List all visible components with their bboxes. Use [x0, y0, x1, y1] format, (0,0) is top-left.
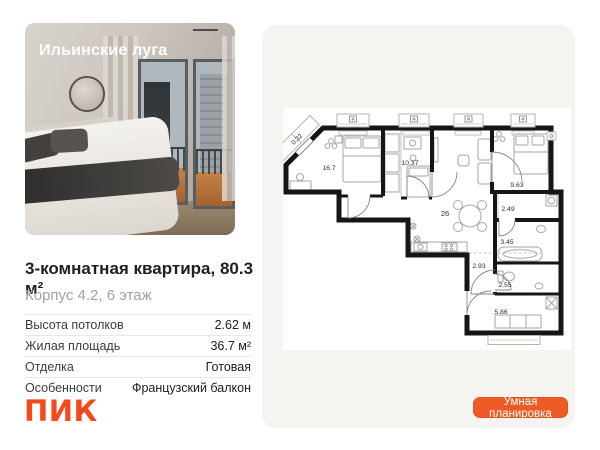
spec-row-ceiling: Высота потолков 2.62 м: [25, 314, 251, 335]
spec-value: 2.62 м: [215, 318, 251, 332]
spec-table: Высота потолков 2.62 м Жилая площадь 36.…: [25, 314, 251, 398]
room-area-label: 16.7: [322, 165, 335, 172]
spec-label: Жилая площадь: [25, 339, 120, 353]
room-area-label: 2.55: [498, 282, 511, 289]
room-area-label: 26: [441, 209, 449, 218]
pik-logo[interactable]: ПИК: [24, 394, 98, 428]
photo-curtain: [222, 36, 235, 201]
spec-row-living-area: Жилая площадь 36.7 м²: [25, 335, 251, 356]
spec-label: Отделка: [25, 360, 74, 374]
room-area-label: 2.93: [472, 263, 485, 270]
floor-plan: 0.32: [283, 108, 571, 350]
photo-mirror: [69, 76, 105, 112]
floor-plan-panel: 0.32: [262, 25, 575, 428]
spec-value: 36.7 м²: [210, 339, 251, 353]
spec-value: Французский балкон: [132, 381, 251, 395]
room-area-label: 9.63: [510, 182, 523, 189]
spec-row-finish: Отделка Готовая: [25, 356, 251, 377]
spec-label: Высота потолков: [25, 318, 124, 332]
room-area-label: 10.37: [401, 160, 418, 167]
photo-ceiling-light: [193, 29, 218, 31]
listing-card: Ильинские луга 3-комнатная квартира, 80.…: [0, 0, 600, 450]
room-area-label: 3.45: [500, 239, 513, 246]
smart-layout-button[interactable]: Умная планировка: [473, 397, 568, 418]
spec-label: Особенности: [25, 381, 102, 395]
spec-value: Готовая: [206, 360, 251, 374]
listing-subtitle: Корпус 4.2, 6 этаж: [25, 287, 152, 304]
project-name-label: Ильинские луга: [39, 42, 167, 60]
electric-panel-icon: [546, 297, 557, 309]
room-area-label: 2.49: [501, 206, 514, 213]
room-area-label: 5.86: [494, 309, 507, 316]
photo-bed: [25, 115, 180, 235]
apartment-photo[interactable]: Ильинские луга: [25, 23, 235, 235]
